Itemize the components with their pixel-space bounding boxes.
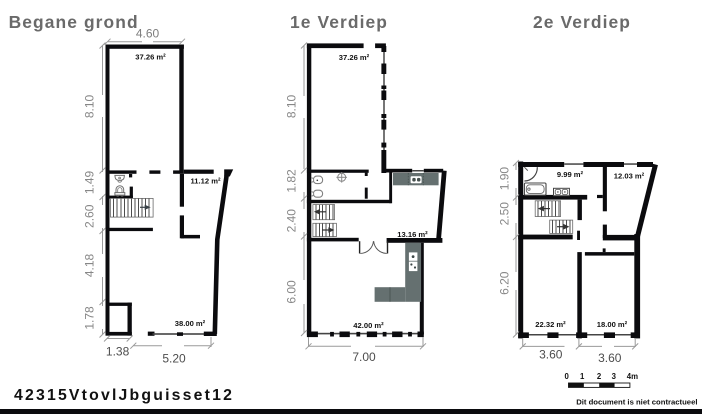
svg-text:Begane grond: Begane grond bbox=[9, 12, 139, 32]
svg-text:42315VtovlJbguisset12: 42315VtovlJbguisset12 bbox=[14, 387, 234, 404]
svg-text:6.00: 6.00 bbox=[285, 280, 299, 304]
svg-text:5.20: 5.20 bbox=[162, 352, 186, 366]
svg-text:2.60: 2.60 bbox=[83, 204, 97, 228]
svg-text:1.90: 1.90 bbox=[498, 167, 512, 191]
svg-text:1.49: 1.49 bbox=[83, 170, 97, 194]
svg-text:1.38: 1.38 bbox=[106, 345, 130, 359]
svg-text:37.26 m²: 37.26 m² bbox=[135, 53, 166, 62]
svg-text:11.12 m²: 11.12 m² bbox=[191, 177, 221, 186]
svg-text:22.32 m²: 22.32 m² bbox=[535, 320, 566, 329]
svg-text:37.26 m²: 37.26 m² bbox=[339, 53, 370, 62]
svg-text:1e Verdiep: 1e Verdiep bbox=[290, 12, 388, 32]
svg-text:3.60: 3.60 bbox=[598, 351, 622, 365]
svg-text:2: 2 bbox=[597, 372, 602, 381]
svg-text:12.03 m²: 12.03 m² bbox=[614, 172, 645, 181]
svg-text:1.82: 1.82 bbox=[285, 169, 299, 193]
svg-text:7.00: 7.00 bbox=[352, 350, 376, 364]
svg-text:3: 3 bbox=[612, 372, 617, 381]
svg-text:2.40: 2.40 bbox=[285, 209, 299, 233]
svg-text:3.60: 3.60 bbox=[539, 348, 563, 362]
svg-text:8.10: 8.10 bbox=[285, 94, 299, 118]
svg-text:1: 1 bbox=[580, 372, 585, 381]
svg-text:6.20: 6.20 bbox=[498, 271, 512, 295]
svg-text:0: 0 bbox=[565, 372, 570, 381]
svg-text:42.00 m²: 42.00 m² bbox=[353, 321, 384, 330]
svg-text:4m: 4m bbox=[627, 372, 638, 381]
svg-text:Dit document is niet contractu: Dit document is niet contractueel bbox=[576, 397, 697, 406]
svg-text:4.18: 4.18 bbox=[83, 253, 97, 277]
svg-text:13.16 m²: 13.16 m² bbox=[397, 230, 428, 239]
svg-text:9.99 m²: 9.99 m² bbox=[557, 170, 584, 179]
svg-text:38.00 m²: 38.00 m² bbox=[175, 319, 206, 328]
svg-text:1.78: 1.78 bbox=[83, 306, 97, 330]
svg-text:8.10: 8.10 bbox=[83, 94, 97, 118]
svg-text:2e Verdiep: 2e Verdiep bbox=[533, 12, 631, 32]
svg-text:2.50: 2.50 bbox=[498, 202, 512, 226]
svg-text:18.00 m²: 18.00 m² bbox=[597, 320, 628, 329]
svg-text:4.60: 4.60 bbox=[136, 27, 160, 41]
